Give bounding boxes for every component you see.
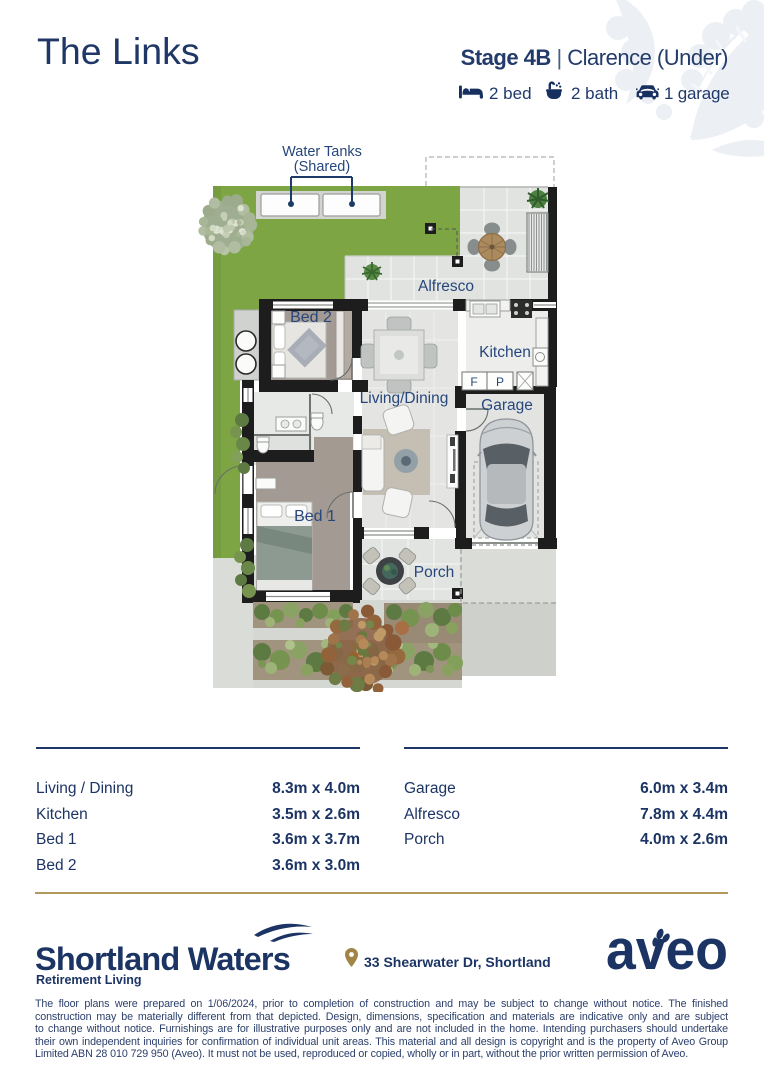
svg-text:Alfresco: Alfresco [418, 278, 474, 295]
svg-text:(Shared): (Shared) [294, 159, 350, 175]
svg-text:P: P [496, 375, 504, 389]
svg-text:Kitchen: Kitchen [479, 344, 531, 361]
svg-text:Water Tanks: Water Tanks [282, 144, 362, 160]
svg-text:aveo: aveo [606, 918, 728, 980]
svg-text:Bed 1: Bed 1 [294, 508, 336, 525]
svg-text:Porch: Porch [414, 564, 455, 581]
svg-text:Garage: Garage [481, 397, 533, 414]
svg-text:Living/Dining: Living/Dining [360, 390, 449, 407]
svg-text:F: F [470, 375, 477, 389]
svg-text:Bed 2: Bed 2 [290, 309, 332, 326]
